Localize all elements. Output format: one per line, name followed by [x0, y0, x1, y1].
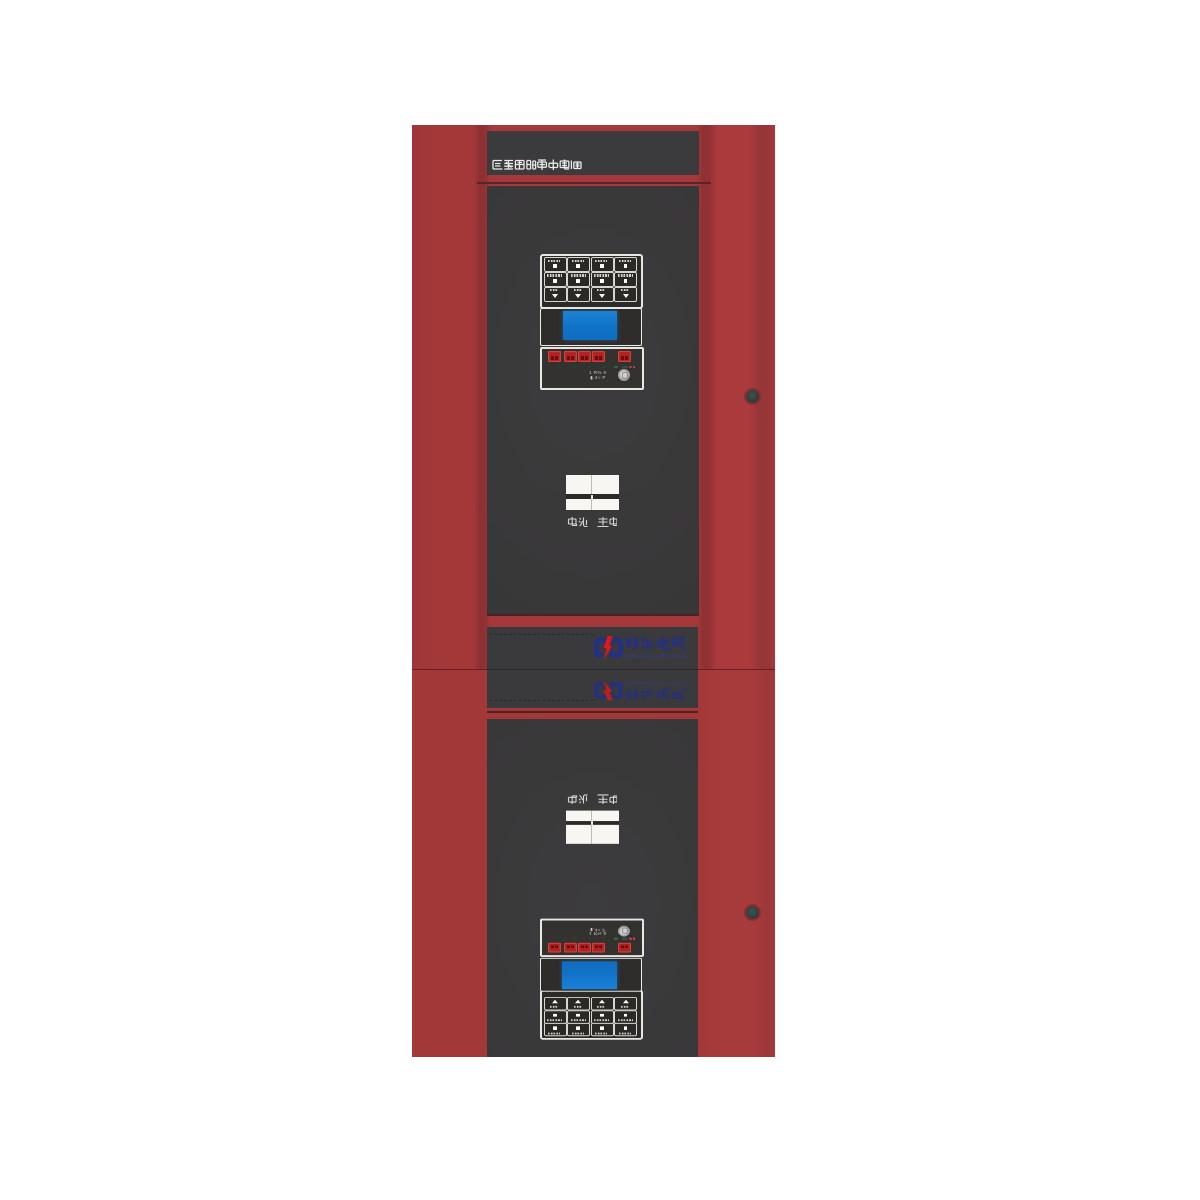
- svg-text:BONGHUA ELECTRICAL: BONGHUA ELECTRICAL: [626, 653, 689, 658]
- svg-text:BONGHUA ELECTRICAL: BONGHUA ELECTRICAL: [626, 681, 689, 686]
